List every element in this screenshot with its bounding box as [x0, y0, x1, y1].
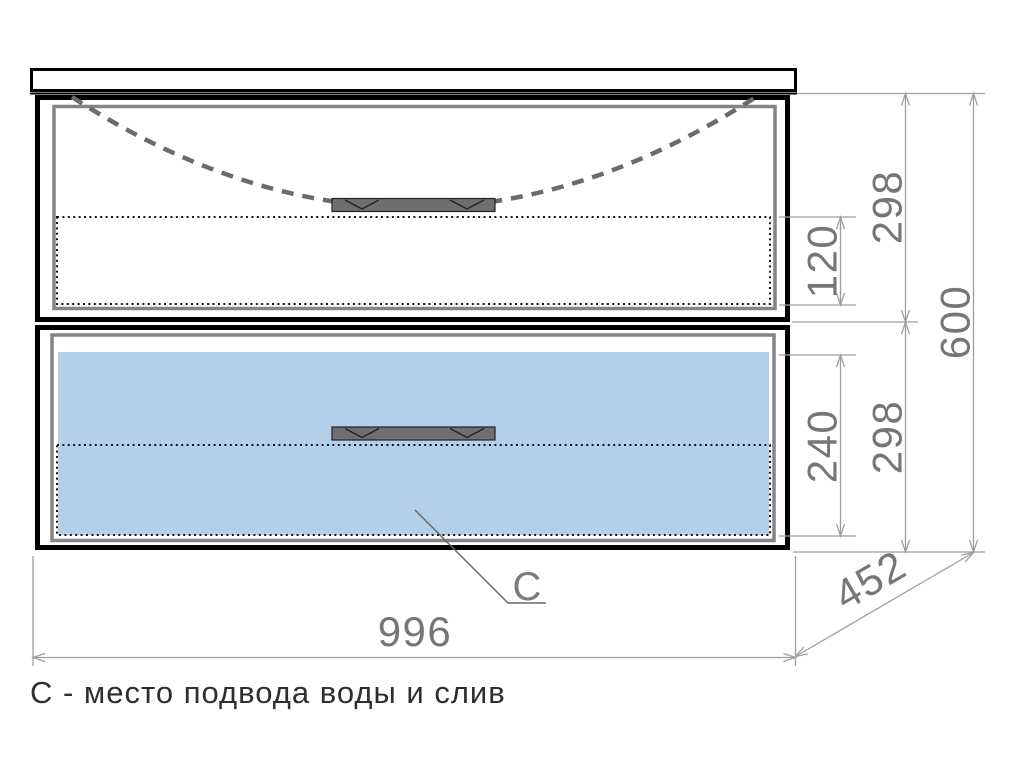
dim-label-240: 240	[799, 409, 846, 484]
handle-bar	[332, 427, 495, 440]
technical-drawing-canvas: C 120 240 298 298 600 996 452 С - место …	[0, 0, 1024, 768]
dim-label-298-top: 298	[864, 170, 911, 245]
water-supply-zone	[58, 352, 769, 535]
countertop	[30, 70, 797, 94]
bottom-drawer-handle	[332, 427, 495, 440]
dim-label-298-bottom: 298	[864, 400, 911, 475]
vanity-dimension-drawing: C 120 240 298 298 600 996 452 С - место …	[0, 0, 1024, 768]
countertop-outline	[32, 70, 796, 91]
top-drawer-handle	[332, 199, 495, 212]
handle-bar	[332, 199, 495, 212]
dim-label-600: 600	[932, 285, 979, 360]
dim-label-996: 996	[378, 608, 453, 655]
bottom-drawer-section	[38, 328, 788, 548]
dim-label-120: 120	[799, 224, 846, 299]
top-drawer-section	[38, 97, 788, 320]
c-label: C	[513, 565, 542, 609]
legend-text: С - место подвода воды и слив	[30, 675, 506, 710]
